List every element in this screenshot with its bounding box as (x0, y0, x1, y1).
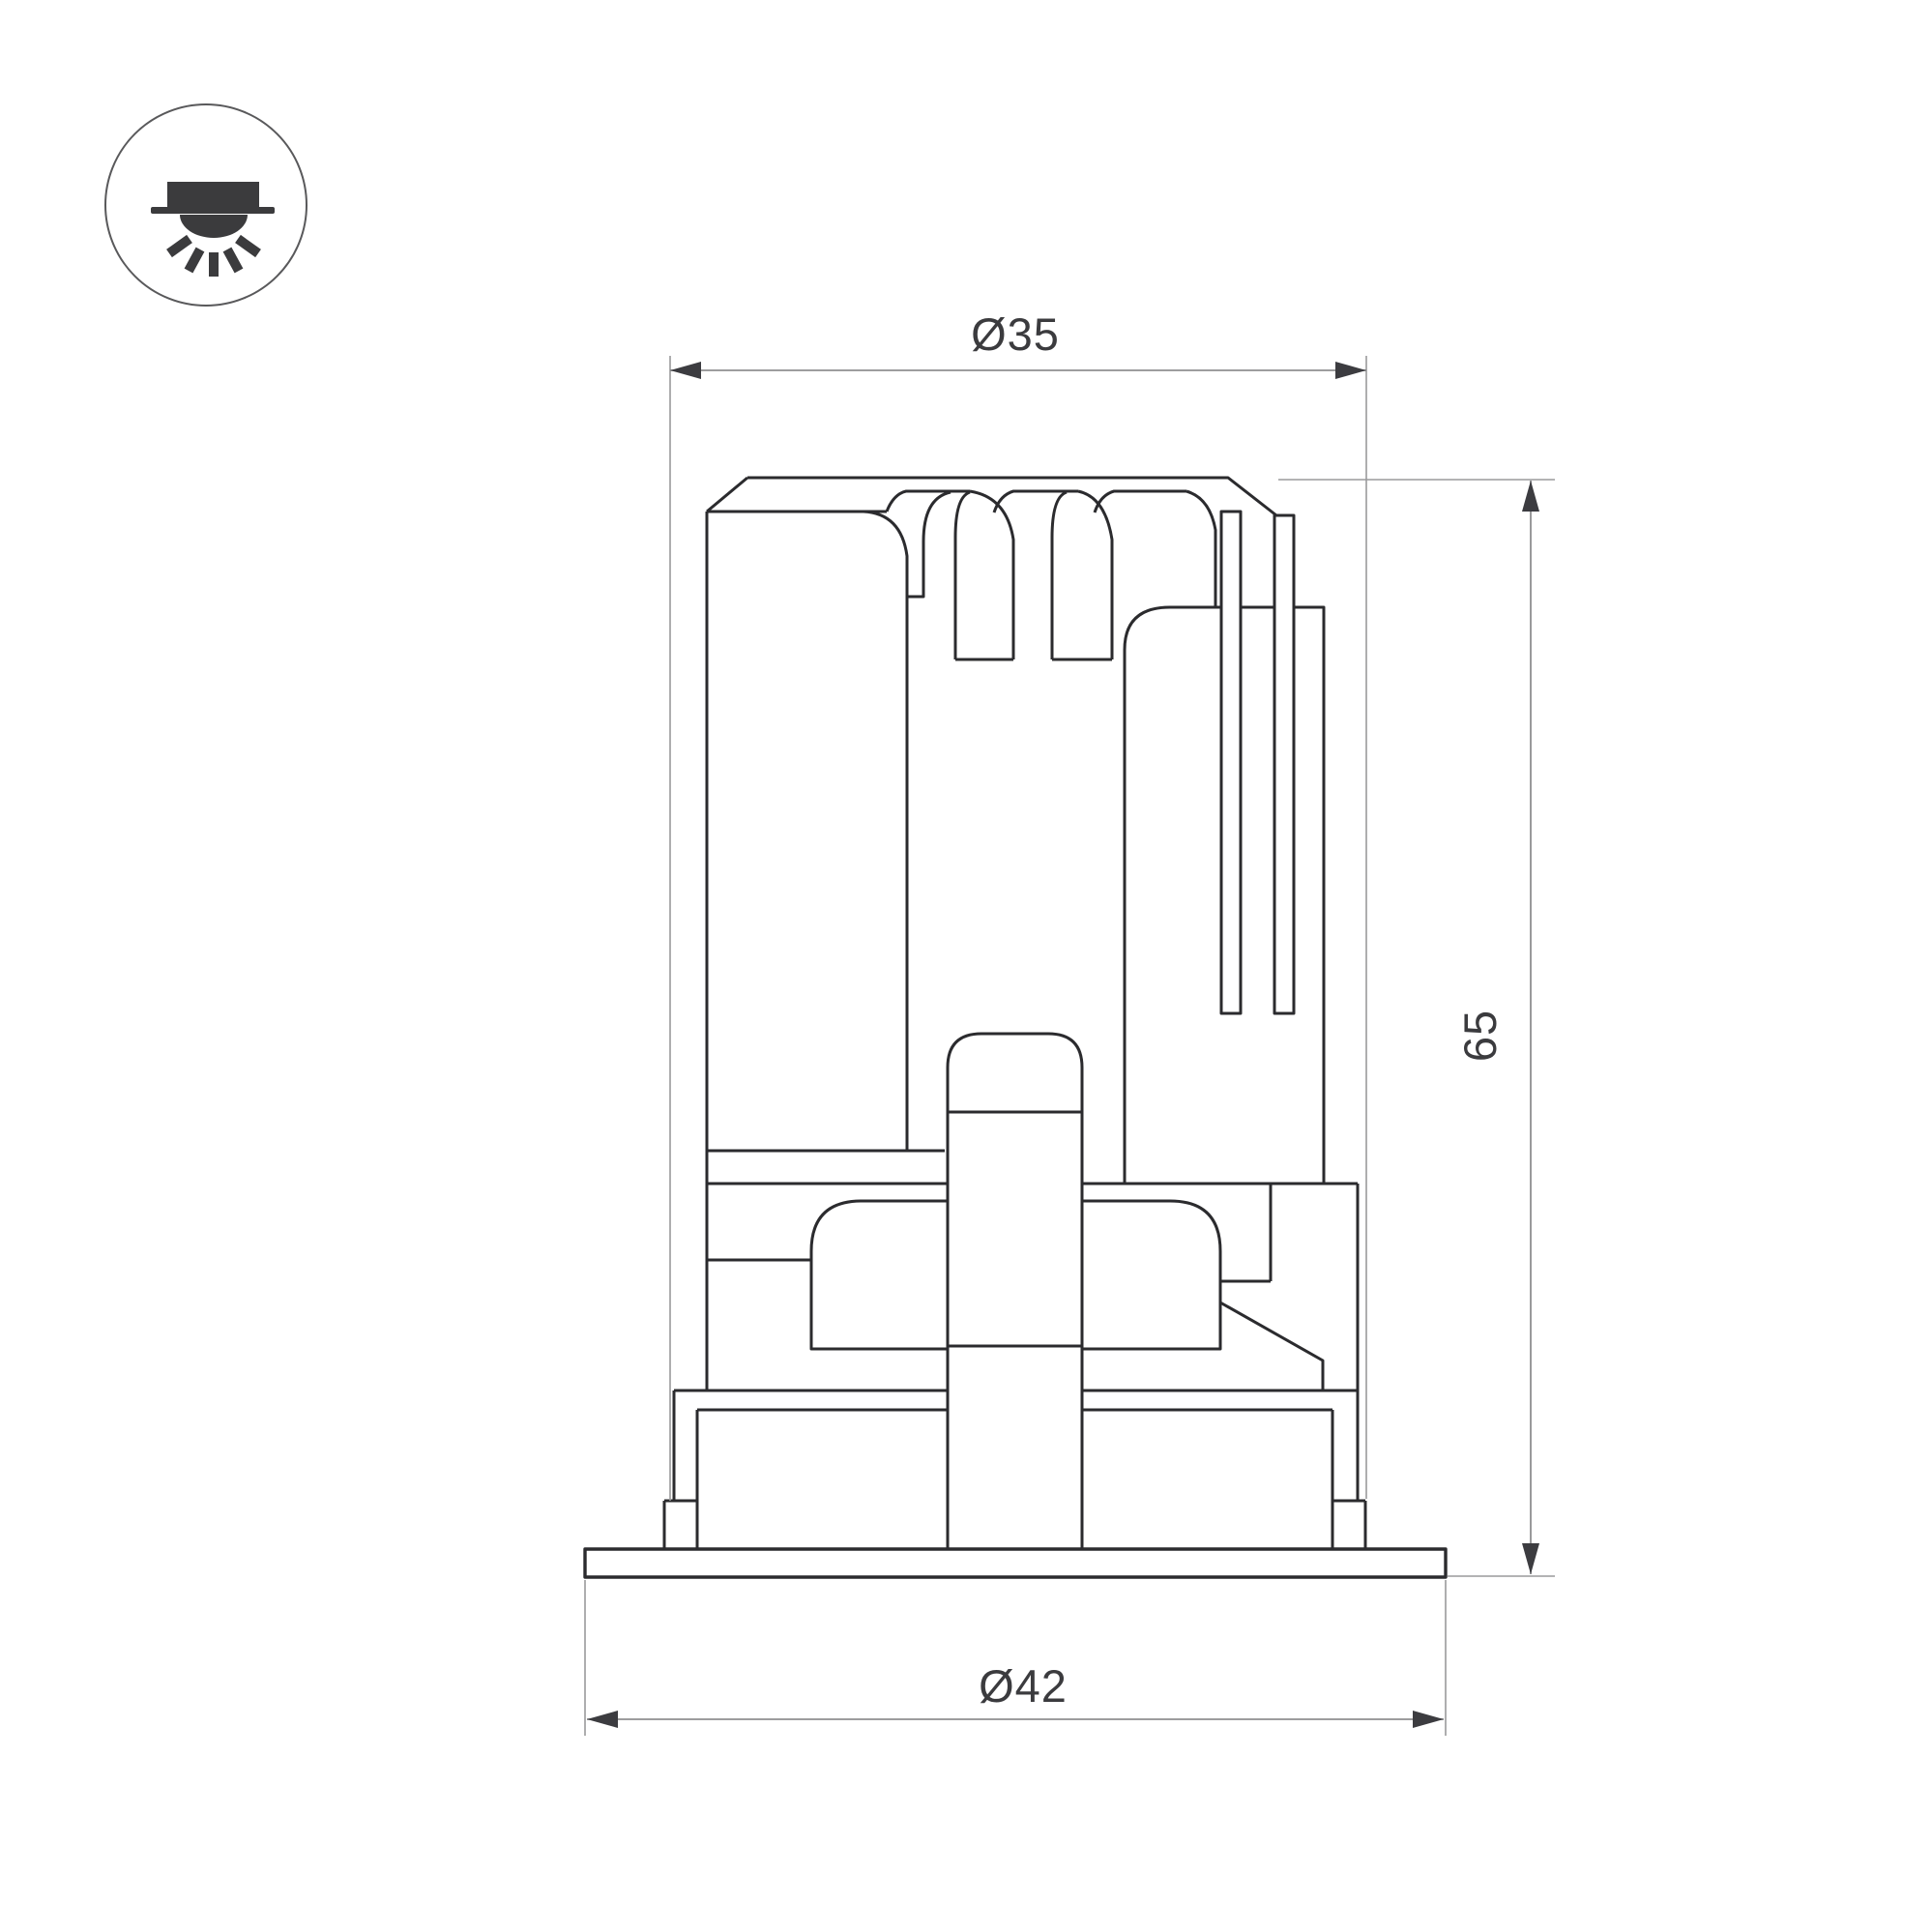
technical-drawing: Ø35 65 Ø42 (0, 0, 1932, 1932)
arrow-up-icon (1522, 481, 1539, 512)
height-label: 65 (1454, 1010, 1506, 1062)
drawing-canvas: Ø35 65 Ø42 (0, 0, 1932, 1932)
arrow-left-icon (587, 1711, 618, 1728)
top-diameter-label: Ø35 (971, 308, 1060, 360)
fin-plate-2 (1274, 515, 1294, 1013)
icon-ceiling-trim (151, 207, 275, 214)
arrow-left-icon (670, 362, 701, 379)
right-diagonal-detail (1220, 1303, 1323, 1390)
flange-diameter-label: Ø42 (979, 1660, 1068, 1712)
heatsink-top-left-chamfer (707, 478, 747, 512)
dimension-flange-diameter: Ø42 (585, 1580, 1446, 1736)
right-step-detail (1220, 1184, 1271, 1281)
arrow-right-icon (1335, 362, 1366, 379)
icon-housing (167, 182, 259, 208)
arrow-down-icon (1522, 1543, 1539, 1574)
recessed-downlight-icon (105, 104, 307, 306)
left-foot (664, 1501, 697, 1548)
luminaire-outline (585, 478, 1446, 1577)
right-foot (1332, 1501, 1365, 1548)
arrow-right-icon (1413, 1711, 1444, 1728)
front-block-corner (864, 512, 907, 1151)
fin-plate-1 (1221, 512, 1241, 1013)
trim-flange (585, 1549, 1446, 1577)
